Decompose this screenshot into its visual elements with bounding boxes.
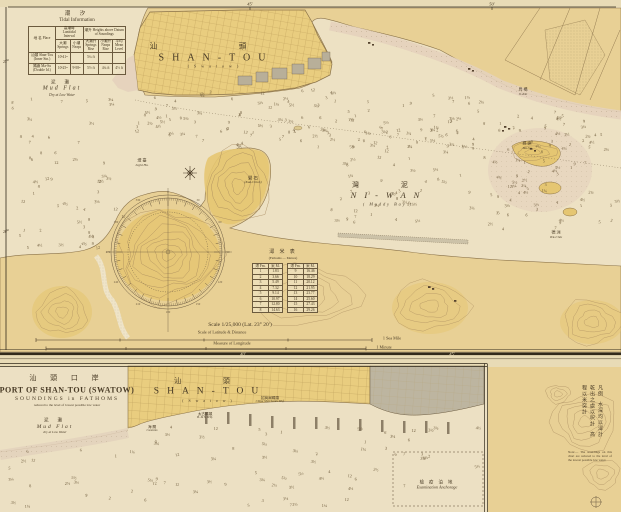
svg-text:12: 12 bbox=[214, 426, 218, 431]
svg-text:6: 6 bbox=[354, 476, 357, 481]
svg-text:12: 12 bbox=[175, 482, 179, 487]
svg-text:7: 7 bbox=[397, 132, 400, 137]
svg-text:1¼: 1¼ bbox=[274, 102, 279, 107]
svg-text:8: 8 bbox=[232, 446, 234, 451]
svg-text:3¼: 3¼ bbox=[8, 476, 14, 482]
svg-text:2: 2 bbox=[436, 127, 439, 132]
svg-text:4½: 4½ bbox=[236, 142, 242, 148]
svg-text:5½: 5½ bbox=[430, 138, 435, 143]
nautical-chart-canvas: 0306090120150180210240270300330 bbox=[0, 0, 621, 512]
svg-text:3½: 3½ bbox=[165, 432, 170, 437]
svg-text:12: 12 bbox=[175, 452, 180, 458]
svg-text:6: 6 bbox=[507, 147, 509, 152]
svg-text:60: 60 bbox=[218, 220, 222, 224]
tidal-table-title-cn: 潮 汐 bbox=[65, 11, 89, 17]
svg-text:3¼: 3¼ bbox=[94, 199, 100, 204]
chart-note-english: Note:— The soundings on this chart are r… bbox=[568, 450, 612, 462]
left-latitude-tick: 20′ bbox=[3, 230, 8, 234]
svg-text:30: 30 bbox=[197, 198, 201, 202]
svg-text:12: 12 bbox=[377, 154, 382, 159]
mud-flat-label-cn: 泥 灘 bbox=[51, 79, 73, 84]
svg-text:5½: 5½ bbox=[258, 123, 263, 128]
scale-bar1-label: Scale of Latitude & Distance bbox=[198, 331, 247, 336]
svg-text:3¼: 3¼ bbox=[521, 183, 527, 189]
conversion-table-title: (Fathoms — Metres) bbox=[269, 257, 297, 261]
svg-text:2½: 2½ bbox=[271, 482, 277, 487]
svg-text:4½: 4½ bbox=[589, 139, 595, 145]
svg-text:3: 3 bbox=[97, 189, 99, 194]
svg-text:3½: 3½ bbox=[462, 144, 468, 150]
svg-text:3: 3 bbox=[83, 224, 85, 229]
svg-text:5½: 5½ bbox=[383, 120, 389, 126]
inset-city-name-cn: 汕 頭 bbox=[174, 377, 250, 385]
svg-text:4½: 4½ bbox=[555, 131, 561, 137]
svg-text:5½: 5½ bbox=[438, 133, 444, 138]
inset-title: PORT OF SHAN-TOU (SWATOW) bbox=[0, 385, 134, 394]
top-longitude-tick: 50′ bbox=[489, 1, 494, 6]
note-col: 乾出之處以呎計 bbox=[589, 385, 594, 427]
svg-text:8: 8 bbox=[239, 112, 241, 117]
svg-text:3¼: 3¼ bbox=[109, 101, 115, 107]
svg-text:3½: 3½ bbox=[207, 479, 212, 484]
svg-text:5½: 5½ bbox=[357, 426, 363, 432]
svg-text:1: 1 bbox=[499, 121, 501, 126]
city-name-cn: 汕 頭 bbox=[150, 43, 287, 52]
svg-text:5½: 5½ bbox=[512, 180, 518, 185]
svg-text:1¼: 1¼ bbox=[25, 504, 30, 509]
svg-text:7: 7 bbox=[195, 134, 197, 139]
note-col: 水深均以潯計 bbox=[597, 402, 602, 438]
svg-text:3½: 3½ bbox=[288, 118, 294, 124]
svg-text:3¼: 3¼ bbox=[259, 477, 264, 482]
svg-text:2½: 2½ bbox=[564, 131, 570, 137]
svg-text:12: 12 bbox=[353, 208, 357, 213]
svg-text:90: 90 bbox=[227, 250, 231, 254]
svg-text:3¼: 3¼ bbox=[277, 117, 283, 122]
inset-subtitle: SOUNDINGS in FATHOMS bbox=[15, 396, 119, 402]
svg-text:4½: 4½ bbox=[319, 476, 325, 481]
svg-text:4½: 4½ bbox=[559, 217, 565, 222]
svg-text:3½: 3½ bbox=[310, 459, 316, 465]
svg-text:6: 6 bbox=[31, 157, 33, 162]
svg-text:3½: 3½ bbox=[324, 425, 330, 431]
svg-text:6: 6 bbox=[308, 124, 311, 129]
inset-mud-flat-sub: dry at Low Water bbox=[43, 431, 67, 435]
bay-name: NI-WAN bbox=[351, 191, 428, 201]
svg-text:3½: 3½ bbox=[420, 456, 426, 461]
svg-text:9: 9 bbox=[519, 128, 521, 133]
svg-text:9: 9 bbox=[416, 140, 418, 145]
svg-text:2½: 2½ bbox=[21, 458, 27, 463]
svg-text:1: 1 bbox=[33, 191, 35, 196]
masu-label: Ma-Su bbox=[522, 147, 531, 151]
svg-text:5½: 5½ bbox=[172, 106, 178, 111]
svg-text:2½: 2½ bbox=[373, 467, 379, 473]
svg-text:7: 7 bbox=[403, 483, 405, 488]
svg-text:2½: 2½ bbox=[488, 221, 493, 226]
inset-subtitle2: reduced to the level of lowest possible … bbox=[34, 404, 100, 408]
svg-text:5½: 5½ bbox=[71, 475, 77, 481]
svg-text:1¼: 1¼ bbox=[322, 503, 327, 508]
svg-text:9: 9 bbox=[420, 127, 422, 132]
svg-text:12: 12 bbox=[412, 428, 416, 433]
svg-text:4½: 4½ bbox=[33, 179, 38, 184]
conversion-table-title-cn: 潯 米 表 bbox=[269, 250, 297, 256]
svg-text:1: 1 bbox=[165, 113, 167, 118]
svg-text:12: 12 bbox=[96, 245, 101, 250]
svg-text:3½: 3½ bbox=[257, 100, 263, 106]
svg-text:5½: 5½ bbox=[415, 218, 421, 224]
svg-text:3: 3 bbox=[194, 119, 197, 124]
svg-text:7: 7 bbox=[77, 140, 79, 145]
svg-text:12: 12 bbox=[345, 497, 349, 502]
svg-text:9: 9 bbox=[228, 120, 230, 125]
svg-text:2½: 2½ bbox=[330, 137, 336, 142]
svg-text:3¼: 3¼ bbox=[370, 142, 376, 147]
city-name-sub: ( S w a t o w ) bbox=[188, 65, 241, 70]
svg-text:2½: 2½ bbox=[585, 134, 591, 140]
svg-text:1¼: 1¼ bbox=[129, 449, 135, 455]
svg-text:12: 12 bbox=[121, 214, 126, 220]
svg-text:3½: 3½ bbox=[533, 202, 539, 208]
svg-text:5: 5 bbox=[27, 245, 29, 250]
tekchiu-label: Tek-Chiu bbox=[550, 236, 562, 240]
svg-text:1¼: 1¼ bbox=[515, 157, 521, 162]
inset-city-name-sub: ( S w a t o w ) bbox=[182, 399, 233, 403]
fathom-metre-table-right: 潯 Fm.米 M.916.461018.291120.121221.951323… bbox=[287, 263, 318, 313]
svg-text:3½: 3½ bbox=[10, 500, 16, 506]
svg-text:1¼: 1¼ bbox=[347, 173, 353, 179]
svg-text:3¼: 3¼ bbox=[283, 496, 289, 502]
svg-text:2½: 2½ bbox=[73, 157, 78, 162]
svg-text:3½: 3½ bbox=[199, 435, 204, 440]
svg-text:5½: 5½ bbox=[441, 179, 447, 185]
svg-text:120: 120 bbox=[218, 280, 223, 284]
svg-text:240: 240 bbox=[114, 280, 119, 284]
svg-text:4½: 4½ bbox=[62, 201, 68, 207]
svg-text:12: 12 bbox=[200, 92, 205, 97]
svg-text:3: 3 bbox=[327, 130, 329, 135]
svg-text:5½: 5½ bbox=[281, 475, 287, 481]
svg-text:5½: 5½ bbox=[313, 103, 319, 109]
svg-text:5½: 5½ bbox=[555, 165, 560, 170]
inset-city-name: SHAN-TOU bbox=[154, 387, 266, 398]
svg-text:2½: 2½ bbox=[147, 121, 152, 126]
svg-text:7: 7 bbox=[166, 103, 168, 108]
svg-text:3¼: 3¼ bbox=[580, 124, 586, 130]
svg-text:3¼: 3¼ bbox=[27, 116, 33, 122]
svg-text:5: 5 bbox=[598, 219, 600, 224]
tidal-table-title: Tidal Information bbox=[59, 18, 95, 24]
map-artwork: 0306090120150180210240270300330 bbox=[0, 0, 621, 512]
svg-text:6: 6 bbox=[144, 497, 146, 502]
scale-bar2-end-label: 1 Minute bbox=[376, 346, 391, 351]
svg-text:9: 9 bbox=[50, 176, 53, 181]
svg-text:3½: 3½ bbox=[334, 218, 339, 223]
svg-text:12: 12 bbox=[260, 91, 264, 96]
svg-text:2½: 2½ bbox=[350, 157, 356, 163]
svg-text:1¼: 1¼ bbox=[464, 95, 470, 101]
svg-text:3¼: 3¼ bbox=[433, 425, 439, 431]
svg-text:3½: 3½ bbox=[89, 120, 95, 125]
svg-text:5½: 5½ bbox=[144, 109, 150, 115]
svg-text:3¼: 3¼ bbox=[211, 456, 216, 461]
svg-text:3½: 3½ bbox=[418, 117, 423, 122]
svg-text:150: 150 bbox=[196, 302, 201, 306]
bottom-longitude-tick: 45′ bbox=[449, 351, 454, 356]
svg-text:8: 8 bbox=[29, 483, 32, 488]
svg-text:3¼: 3¼ bbox=[449, 141, 455, 147]
scale-bar2-label: Measure of Longitude bbox=[213, 342, 250, 347]
svg-text:6: 6 bbox=[408, 437, 411, 442]
inset-title-cn: 汕 頭 口 岸 bbox=[29, 374, 104, 382]
svg-text:1: 1 bbox=[138, 121, 140, 126]
svg-text:12: 12 bbox=[31, 457, 36, 462]
tidal-information-table: 地 名 Place高潮時 Lunitidal Interval潮升 Height… bbox=[28, 26, 126, 75]
svg-text:5: 5 bbox=[86, 98, 88, 103]
svg-text:2½: 2½ bbox=[98, 178, 104, 183]
svg-text:3¼: 3¼ bbox=[108, 97, 113, 102]
okio-label: O-Kio bbox=[519, 93, 527, 97]
svg-text:3¼: 3¼ bbox=[504, 203, 510, 208]
svg-text:4½: 4½ bbox=[492, 159, 498, 165]
svg-text:5½: 5½ bbox=[261, 441, 267, 447]
svg-text:2: 2 bbox=[368, 108, 370, 113]
svg-text:3½: 3½ bbox=[448, 95, 454, 101]
svg-text:3½: 3½ bbox=[614, 198, 620, 204]
fathom-metre-table-left: 潯 Fm.米 M.11.8323.6635.4947.3259.14610.97… bbox=[252, 263, 283, 313]
svg-text:3½: 3½ bbox=[410, 168, 415, 173]
svg-text:12: 12 bbox=[268, 105, 272, 110]
svg-text:4½: 4½ bbox=[37, 242, 43, 247]
svg-text:300: 300 bbox=[114, 220, 119, 224]
svg-text:4½: 4½ bbox=[580, 197, 586, 203]
svg-text:5½: 5½ bbox=[474, 463, 480, 469]
pier-label: B. & S. Whf. bbox=[197, 416, 213, 420]
svg-text:210: 210 bbox=[136, 302, 141, 306]
svg-text:3¼: 3¼ bbox=[449, 116, 455, 121]
lighthouse-label: Light Ho. bbox=[136, 164, 149, 168]
svg-text:3½: 3½ bbox=[289, 484, 295, 489]
svg-text:1¼: 1¼ bbox=[360, 446, 366, 452]
city-name: SHAN-TOU bbox=[159, 52, 274, 64]
svg-text:12: 12 bbox=[45, 176, 50, 181]
svg-text:7: 7 bbox=[354, 214, 357, 219]
svg-text:3½: 3½ bbox=[106, 176, 112, 182]
svg-text:330: 330 bbox=[136, 198, 141, 202]
scale-bar1-end-label: 1 Sea Mile bbox=[383, 337, 401, 342]
svg-text:3½: 3½ bbox=[262, 454, 268, 459]
svg-text:4½: 4½ bbox=[348, 486, 353, 491]
svg-text:3¼: 3¼ bbox=[469, 205, 474, 210]
bottom-longitude-tick: 40′ bbox=[240, 351, 245, 356]
note-col: 凡例 bbox=[597, 385, 602, 397]
svg-text:12: 12 bbox=[54, 160, 58, 165]
pier-label: China Merchants Whf. bbox=[256, 400, 285, 404]
bay-name-sub: ( Muddy Bay ) bbox=[363, 203, 413, 208]
mud-flat-label: Mud Flat bbox=[43, 86, 82, 93]
svg-text:3¼: 3¼ bbox=[179, 131, 185, 137]
anchorage-label: Examination Anchorage bbox=[417, 486, 458, 491]
svg-text:12: 12 bbox=[152, 480, 157, 486]
svg-text:5½: 5½ bbox=[160, 119, 165, 124]
svg-text:7: 7 bbox=[433, 114, 435, 119]
svg-text:2½: 2½ bbox=[588, 190, 594, 196]
mud-flat-sublabel: Dry at Low Water bbox=[49, 93, 75, 97]
svg-text:4½: 4½ bbox=[81, 241, 87, 247]
svg-text:9: 9 bbox=[103, 160, 105, 165]
svg-text:3¼: 3¼ bbox=[381, 129, 386, 134]
svg-text:5: 5 bbox=[600, 132, 602, 137]
svg-text:270: 270 bbox=[106, 250, 111, 254]
svg-text:5½: 5½ bbox=[183, 116, 188, 121]
svg-text:6: 6 bbox=[168, 132, 171, 137]
svg-text:5: 5 bbox=[19, 233, 21, 238]
svg-text:2½: 2½ bbox=[604, 147, 609, 152]
scale-note: Scale 1/25,000 (Lat. 23° 20′) bbox=[208, 322, 272, 328]
left-latitude-tick: 25′ bbox=[3, 60, 8, 64]
svg-text:4½: 4½ bbox=[496, 174, 502, 180]
lighthouse-icon bbox=[183, 166, 197, 180]
svg-text:6: 6 bbox=[319, 115, 321, 120]
svg-text:5½: 5½ bbox=[289, 102, 294, 107]
svg-text:12: 12 bbox=[347, 473, 352, 479]
svg-text:5: 5 bbox=[561, 113, 564, 118]
svg-text:3¼: 3¼ bbox=[197, 110, 203, 115]
svg-text:4½: 4½ bbox=[561, 146, 567, 151]
svg-text:3½: 3½ bbox=[58, 242, 63, 247]
kakchioh-label: (Kak-Chioh) bbox=[244, 181, 261, 185]
svg-text:6: 6 bbox=[346, 162, 348, 167]
svg-text:1: 1 bbox=[115, 454, 117, 459]
chart-note-vertical: 凡例 水深均以潯計 乾出之處以呎計 高程以米突計 bbox=[579, 385, 603, 443]
svg-text:9: 9 bbox=[92, 241, 94, 246]
svg-text:12: 12 bbox=[21, 199, 26, 204]
svg-text:1¼: 1¼ bbox=[541, 188, 547, 194]
svg-text:3¼: 3¼ bbox=[390, 434, 396, 439]
svg-text:5½: 5½ bbox=[298, 471, 304, 477]
svg-text:3: 3 bbox=[430, 128, 432, 133]
svg-text:3½: 3½ bbox=[292, 448, 298, 454]
svg-text:1¼: 1¼ bbox=[348, 116, 354, 122]
svg-text:8: 8 bbox=[483, 155, 485, 160]
svg-text:5: 5 bbox=[543, 159, 545, 164]
svg-text:3¼: 3¼ bbox=[193, 489, 198, 494]
svg-text:5: 5 bbox=[255, 470, 257, 475]
svg-text:2½: 2½ bbox=[312, 133, 317, 138]
svg-text:12: 12 bbox=[113, 206, 118, 211]
svg-text:5: 5 bbox=[258, 427, 260, 432]
svg-text:8: 8 bbox=[40, 150, 42, 155]
svg-text:6: 6 bbox=[498, 128, 500, 133]
svg-text:1: 1 bbox=[402, 103, 404, 108]
svg-text:5½: 5½ bbox=[433, 167, 439, 172]
svg-text:2½: 2½ bbox=[479, 99, 485, 104]
bay-name-cn: 灣 泥 bbox=[352, 181, 428, 189]
svg-text:6: 6 bbox=[468, 101, 470, 106]
svg-text:1¼: 1¼ bbox=[406, 130, 412, 136]
svg-text:6: 6 bbox=[445, 132, 447, 137]
top-longitude-tick: 45′ bbox=[247, 1, 252, 6]
svg-text:8: 8 bbox=[541, 149, 543, 154]
svg-text:7: 7 bbox=[584, 160, 586, 165]
svg-text:8: 8 bbox=[88, 217, 90, 222]
svg-text:5½: 5½ bbox=[77, 219, 82, 224]
svg-text:6: 6 bbox=[80, 447, 82, 452]
svg-text:2½: 2½ bbox=[456, 116, 462, 122]
svg-text:4½: 4½ bbox=[476, 425, 482, 430]
svg-text:7: 7 bbox=[29, 140, 31, 145]
svg-text:4½: 4½ bbox=[155, 123, 161, 129]
svg-text:5: 5 bbox=[347, 109, 349, 114]
svg-text:2½: 2½ bbox=[65, 481, 70, 486]
svg-text:3¼: 3¼ bbox=[443, 149, 448, 154]
svg-text:1: 1 bbox=[524, 160, 526, 165]
inset-mud-flat-cn: 泥 灘 bbox=[44, 417, 66, 422]
svg-text:1: 1 bbox=[570, 165, 572, 170]
svg-text:4½: 4½ bbox=[523, 190, 528, 195]
svg-text:6: 6 bbox=[389, 134, 392, 139]
customs-label: Customs bbox=[147, 429, 158, 433]
svg-text:2½: 2½ bbox=[292, 502, 297, 507]
svg-text:5: 5 bbox=[367, 99, 369, 104]
svg-text:180: 180 bbox=[166, 310, 171, 314]
svg-text:6: 6 bbox=[507, 212, 509, 217]
